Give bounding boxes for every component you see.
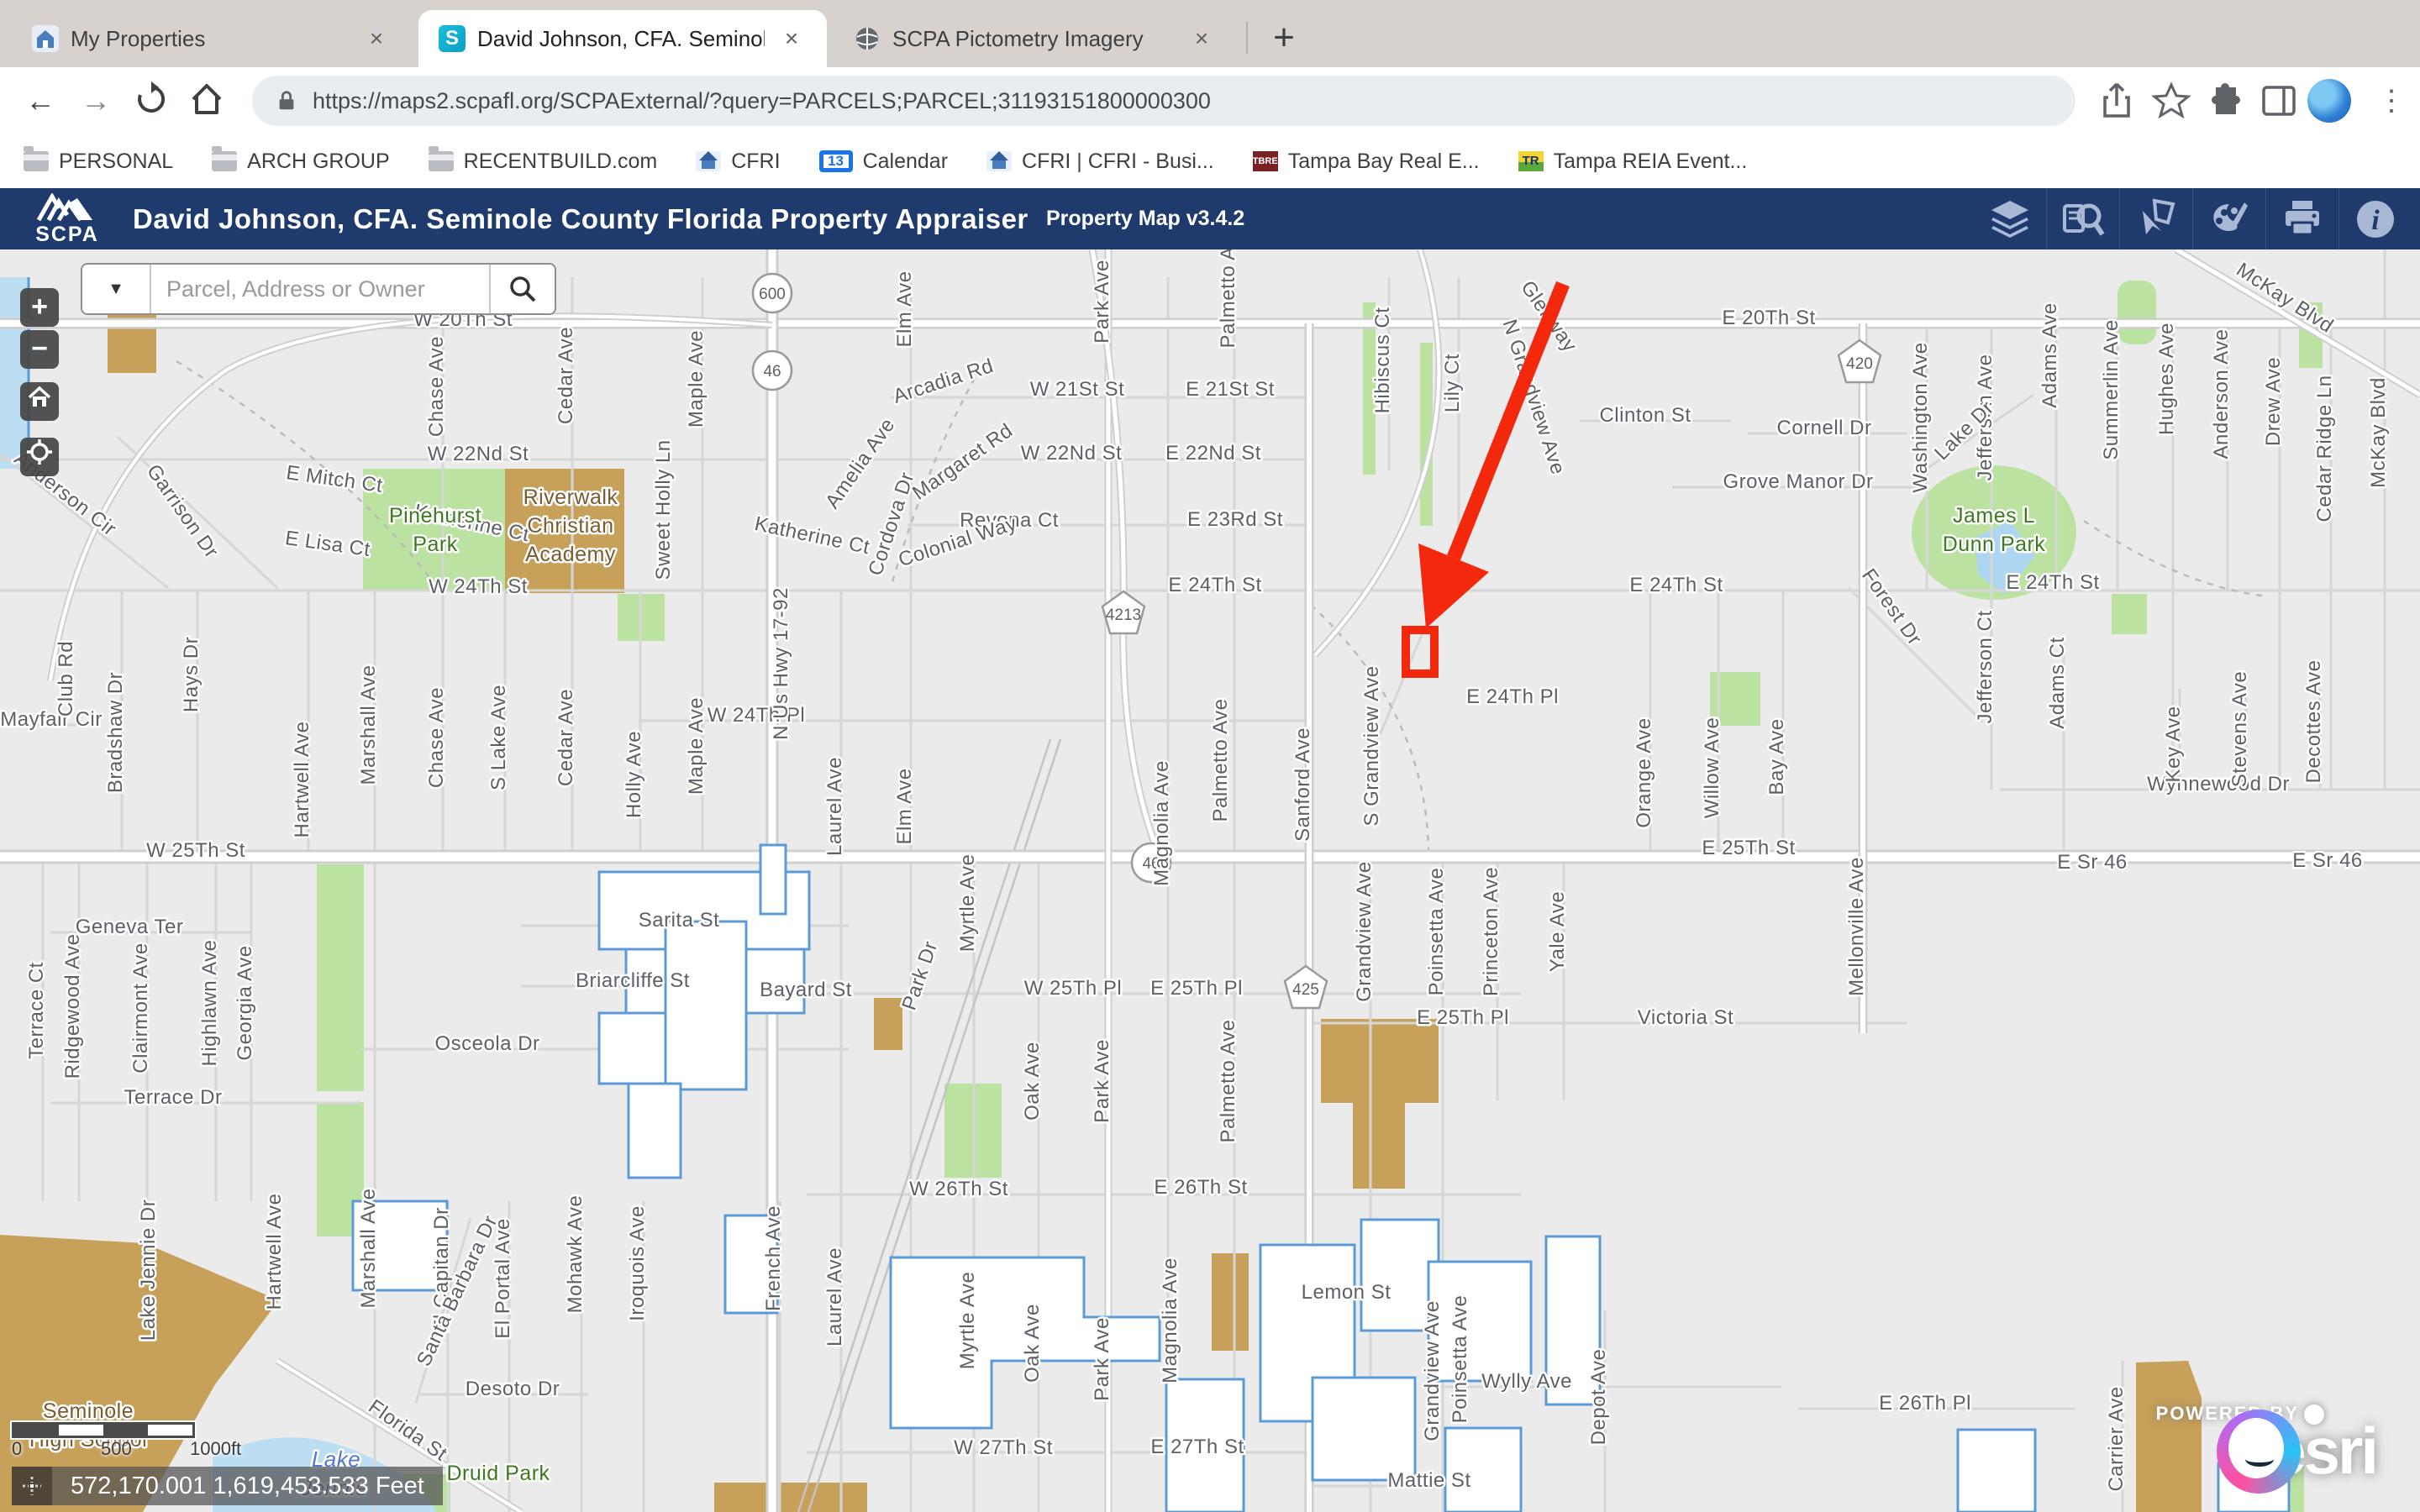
svg-text:46: 46: [763, 363, 781, 381]
svg-text:E Sr 46: E Sr 46: [2292, 849, 2363, 872]
svg-text:W 21St St: W 21St St: [1030, 378, 1125, 401]
tbre-favicon-icon: TBRE: [1253, 151, 1278, 171]
identify-select-button[interactable]: [2119, 188, 2192, 249]
zoom-out-button[interactable]: −: [20, 330, 59, 369]
svg-text:Iroquois Ave: Iroquois Ave: [626, 1205, 649, 1321]
svg-text:Cedar Ave: Cedar Ave: [555, 689, 577, 786]
home-extent-button[interactable]: [20, 382, 59, 421]
scale-bar-graphic: [12, 1422, 195, 1438]
bookmark-star-icon[interactable]: [2151, 81, 2191, 121]
svg-text:Terrace Ct: Terrace Ct: [25, 962, 48, 1059]
svg-text:Maple Ave: Maple Ave: [685, 330, 708, 428]
tab-close-icon[interactable]: ×: [776, 25, 807, 52]
svg-text:Briarcliffe St: Briarcliffe St: [576, 969, 690, 992]
svg-text:McKay Blvd: McKay Blvd: [2367, 377, 2390, 488]
folder-icon: [212, 151, 237, 171]
svg-text:Grove Manor Dr: Grove Manor Dr: [1723, 470, 1873, 493]
reload-button[interactable]: [129, 79, 173, 123]
svg-text:Chase Ave: Chase Ave: [425, 336, 448, 437]
svg-text:Key Ave: Key Ave: [2162, 706, 2185, 782]
forward-button[interactable]: →: [74, 79, 118, 123]
svg-text:Riverwalk: Riverwalk: [523, 486, 618, 509]
folder-icon: [24, 151, 49, 171]
svg-text:Clairmont Ave: Clairmont Ave: [129, 942, 152, 1073]
svg-text:Oak Ave: Oak Ave: [1021, 1304, 1044, 1383]
svg-text:600: 600: [759, 286, 786, 303]
svg-text:Sarita St: Sarita St: [639, 909, 720, 932]
svg-text:Colonial Way: Colonial Way: [896, 512, 1020, 571]
bookmark-recentbuild[interactable]: RECENTBUILD.com: [429, 150, 658, 174]
svg-text:Magnolia Ave: Magnolia Ave: [1150, 760, 1173, 886]
svg-text:W 27Th St: W 27Th St: [954, 1436, 1053, 1459]
svg-text:Pinehurst: Pinehurst: [389, 504, 481, 528]
svg-text:Hibiscus Ct: Hibiscus Ct: [1371, 307, 1394, 414]
browser-menu-kebab-icon[interactable]: ⋮: [2375, 77, 2408, 124]
svg-text:Sanford Ave: Sanford Ave: [1292, 727, 1314, 842]
bookmark-cfri-business[interactable]: CFRI | CFRI - Busi...: [986, 150, 1214, 174]
svg-text:Victoria St: Victoria St: [1638, 1006, 1733, 1029]
svg-text:Florida St: Florida St: [364, 1395, 451, 1466]
svg-text:Carrier Ave: Carrier Ave: [2105, 1386, 2128, 1491]
reia-favicon-icon: TR: [1518, 151, 1544, 171]
browser-tab-bar: My Properties × S David Johnson, CFA. Se…: [0, 0, 2420, 67]
svg-text:Park: Park: [413, 533, 457, 556]
lock-icon: [276, 90, 297, 112]
svg-text:Chase Ave: Chase Ave: [425, 687, 448, 788]
zoom-in-button[interactable]: +: [20, 288, 59, 327]
svg-text:Clinton St: Clinton St: [1599, 404, 1691, 427]
svg-text:Elm Ave: Elm Ave: [893, 768, 916, 844]
svg-text:Bayard St: Bayard St: [760, 979, 852, 1001]
svg-text:E 24Th Pl: E 24Th Pl: [1466, 685, 1559, 708]
esri-attribution: POWERED BY esri: [2146, 1403, 2398, 1504]
house-favicon-icon: [986, 151, 1012, 171]
svg-text:420: 420: [1846, 355, 1873, 373]
tab-close-icon[interactable]: ×: [361, 25, 392, 52]
svg-text:Marshall Ave: Marshall Ave: [357, 665, 380, 785]
tab-close-icon[interactable]: ×: [1186, 25, 1217, 52]
search-button[interactable]: [489, 265, 555, 313]
locate-button[interactable]: [20, 438, 59, 476]
svg-text:E Lisa Ct: E Lisa Ct: [284, 527, 372, 561]
page-title: David Johnson, CFA. Seminole County Flor…: [133, 188, 1028, 249]
address-bar[interactable]: https://maps2.scpafl.org/SCPAExternal/?q…: [252, 76, 2075, 126]
svg-text:Summerlin Ave: Summerlin Ave: [2100, 319, 2123, 459]
home-favicon-icon: [32, 25, 59, 52]
svg-text:S Lake Ave: S Lake Ave: [487, 685, 510, 790]
svg-text:Hughes Ave: Hughes Ave: [2155, 323, 2178, 435]
svg-text:E 24Th St: E 24Th St: [1629, 574, 1723, 596]
svg-text:Park Dr: Park Dr: [897, 938, 942, 1013]
tab-separator: [1246, 22, 1248, 54]
tab-title: David Johnson, CFA. Seminole: [477, 26, 765, 52]
svg-text:Marshall Ave: Marshall Ave: [357, 1189, 380, 1309]
svg-text:W 26Th St: W 26Th St: [909, 1178, 1008, 1200]
svg-text:Decottes Ave: Decottes Ave: [2302, 660, 2325, 784]
scale-bar: 0 500 1000ft: [12, 1422, 264, 1460]
scpa-favicon-icon: S: [439, 25, 466, 52]
svg-text:N Us Hwy 17-92: N Us Hwy 17-92: [770, 587, 792, 740]
bookmark-tampa-reia[interactable]: TRTampa REIA Event...: [1518, 150, 1748, 174]
svg-text:Holly Ave: Holly Ave: [623, 731, 645, 818]
svg-text:Cedar Ave: Cedar Ave: [555, 327, 577, 424]
svg-text:Washington Ave: Washington Ave: [1909, 342, 1932, 492]
svg-text:Grandview Ave: Grandview Ave: [1421, 1300, 1444, 1441]
svg-text:Poinsetta Ave: Poinsetta Ave: [1449, 1295, 1471, 1424]
svg-text:Cedar Ridge Ln: Cedar Ridge Ln: [2313, 375, 2336, 522]
layers-button[interactable]: [1974, 188, 2046, 249]
assistant-overlay-icon: [2217, 1410, 2301, 1494]
svg-text:Terrace Dr: Terrace Dr: [124, 1086, 222, 1109]
svg-text:Lemon St: Lemon St: [1302, 1281, 1391, 1304]
svg-text:Mellonville Ave: Mellonville Ave: [1845, 857, 1868, 996]
svg-text:Highlawn Ave: Highlawn Ave: [198, 940, 221, 1067]
svg-text:Palmetto Ave: Palmetto Ave: [1217, 1020, 1239, 1143]
svg-text:W 25Th Pl: W 25Th Pl: [1024, 977, 1123, 1000]
svg-text:James L: James L: [1953, 504, 2035, 528]
svg-text:E Sr 46: E Sr 46: [2057, 851, 2128, 874]
svg-text:Park Ave: Park Ave: [1091, 1039, 1113, 1123]
svg-text:Myrtle Ave: Myrtle Ave: [956, 1272, 979, 1370]
svg-text:Laurel Ave: Laurel Ave: [823, 757, 846, 856]
svg-text:Bradshaw Dr: Bradshaw Dr: [104, 672, 127, 793]
app-header: SCPA David Johnson, CFA. Seminole County…: [0, 188, 2420, 249]
svg-text:Orange Ave: Orange Ave: [1633, 717, 1655, 827]
svg-text:Osceola Dr: Osceola Dr: [434, 1032, 539, 1055]
svg-text:Druid Park: Druid Park: [446, 1462, 550, 1485]
svg-text:Academy: Academy: [525, 543, 616, 566]
bookmark-cfri[interactable]: CFRI: [696, 150, 780, 174]
globe-favicon-icon: [854, 25, 881, 52]
bookmark-tampa-bay-real-estate[interactable]: TBRETampa Bay Real E...: [1253, 150, 1480, 174]
svg-text:Princeton Ave: Princeton Ave: [1480, 867, 1502, 996]
svg-text:Club Rd: Club Rd: [55, 641, 77, 717]
svg-text:Ridgewood Ave: Ridgewood Ave: [61, 934, 84, 1079]
svg-text:425: 425: [1292, 981, 1319, 999]
svg-text:E 22Nd St: E 22Nd St: [1165, 442, 1261, 465]
calendar-icon: 13: [819, 150, 853, 172]
svg-text:Mattie St: Mattie St: [1387, 1469, 1470, 1492]
svg-text:Wylly Ave: Wylly Ave: [1481, 1370, 1572, 1393]
svg-text:Cornell Dr: Cornell Dr: [1776, 417, 1871, 439]
svg-text:Mayfair Cir: Mayfair Cir: [0, 708, 103, 731]
extensions-puzzle-icon[interactable]: [2206, 81, 2246, 121]
svg-text:E 24Th St: E 24Th St: [2006, 571, 2099, 594]
coordinate-crosshair-icon[interactable]: [12, 1467, 52, 1505]
coordinate-value: 572,170.001 1,619,453.533 Feet: [52, 1467, 443, 1505]
browser-toolbar: ← → https://maps2.scpafl.org/SCPAExterna…: [0, 67, 2420, 134]
svg-text:Arcadia Rd: Arcadia Rd: [891, 354, 997, 408]
svg-text:Laurel Ave: Laurel Ave: [823, 1247, 846, 1347]
svg-text:Hays Dr: Hays Dr: [180, 637, 203, 712]
svg-text:Dunn Park: Dunn Park: [1943, 533, 2046, 556]
svg-text:Bay Ave: Bay Ave: [1765, 718, 1788, 795]
new-tab-button[interactable]: +: [1262, 17, 1306, 60]
svg-text:Depot Ave: Depot Ave: [1587, 1349, 1610, 1446]
svg-text:E Mitch Ct: E Mitch Ct: [285, 461, 384, 497]
svg-text:W 22Nd St: W 22Nd St: [428, 443, 529, 465]
search-input[interactable]: [151, 265, 489, 313]
bookmark-arch-group[interactable]: ARCH GROUP: [212, 150, 389, 174]
svg-text:French Ave: French Ave: [762, 1205, 785, 1311]
svg-text:i: i: [2371, 205, 2380, 236]
svg-text:Garrison Dr: Garrison Dr: [142, 460, 223, 563]
svg-text:Hartwell Ave: Hartwell Ave: [291, 722, 313, 838]
svg-text:E 20Th St: E 20Th St: [1722, 307, 1815, 329]
crosshair-icon: [26, 438, 53, 465]
url-text: https://maps2.scpafl.org/SCPAExternal/?q…: [313, 88, 1211, 114]
map-container: 60046464204213425 W 20Th StE 20Th StW 21…: [0, 249, 2420, 1512]
scpa-mountain-icon: [34, 193, 101, 222]
scpa-logo[interactable]: SCPA: [27, 193, 108, 243]
svg-text:E 23Rd St: E 23Rd St: [1187, 508, 1283, 531]
info-button[interactable]: i: [2338, 188, 2412, 249]
svg-text:E 25Th Pl: E 25Th Pl: [1417, 1006, 1509, 1029]
coordinate-readout: 572,170.001 1,619,453.533 Feet: [12, 1467, 443, 1505]
svg-text:Park Ave: Park Ave: [1091, 260, 1113, 344]
svg-text:Myrtle Ave: Myrtle Ave: [956, 854, 979, 953]
svg-text:Magnolia Ave: Magnolia Ave: [1159, 1257, 1181, 1383]
svg-text:4213: 4213: [1106, 606, 1141, 624]
svg-text:Adams Ct: Adams Ct: [2046, 637, 2069, 728]
svg-text:Stevens Ave: Stevens Ave: [2228, 671, 2251, 787]
svg-text:Palmetto Ave: Palmetto Ave: [1217, 249, 1239, 348]
svg-text:Sweet Holly Ln: Sweet Holly Ln: [652, 439, 675, 580]
scpa-logo-text: SCPA: [27, 226, 108, 243]
print-button[interactable]: [2265, 188, 2338, 249]
side-panel-icon[interactable]: [2259, 81, 2299, 121]
svg-text:S Grandview Ave: S Grandview Ave: [1360, 665, 1383, 826]
back-button[interactable]: ←: [18, 79, 62, 123]
svg-text:Christian: Christian: [527, 514, 613, 538]
svg-text:Mohawk Ave: Mohawk Ave: [564, 1195, 587, 1314]
svg-text:Desoto Dr: Desoto Dr: [466, 1378, 560, 1400]
svg-text:Margaret Rd: Margaret Rd: [908, 419, 1017, 505]
profile-avatar[interactable]: [2307, 79, 2351, 123]
svg-text:Palmetto Ave: Palmetto Ave: [1209, 699, 1232, 822]
svg-text:Park Ave: Park Ave: [1091, 1317, 1113, 1401]
svg-text:E 25Th Pl: E 25Th Pl: [1150, 977, 1243, 1000]
search-type-dropdown[interactable]: ▼: [82, 265, 151, 313]
svg-text:Lake Jennie Dr: Lake Jennie Dr: [137, 1200, 160, 1341]
svg-text:Elm Ave: Elm Ave: [893, 270, 916, 347]
svg-text:Poinsetta Ave: Poinsetta Ave: [1425, 868, 1448, 996]
svg-text:E 21St St: E 21St St: [1186, 378, 1275, 401]
tab-my-properties[interactable]: My Properties ×: [12, 10, 412, 67]
svg-text:Lily Ct: Lily Ct: [1441, 354, 1464, 412]
drawing-tools-button[interactable]: [2192, 188, 2265, 249]
scale-tick: 0: [12, 1438, 22, 1460]
map-canvas[interactable]: 60046464204213425 W 20Th StE 20Th StW 21…: [0, 249, 2420, 1512]
svg-text:E 26Th Pl: E 26Th Pl: [1879, 1392, 1971, 1415]
svg-text:E 25Th St: E 25Th St: [1702, 837, 1795, 859]
svg-text:W 25Th St: W 25Th St: [146, 839, 245, 862]
share-icon[interactable]: [2096, 81, 2137, 121]
svg-text:Grandview Ave: Grandview Ave: [1353, 861, 1376, 1001]
svg-text:E 27Th St: E 27Th St: [1150, 1436, 1244, 1458]
svg-text:W 24Th St: W 24Th St: [429, 575, 528, 598]
tab-pictometry[interactable]: SCPA Pictometry Imagery ×: [834, 10, 1237, 67]
svg-text:Jefferson Ct: Jefferson Ct: [1974, 611, 1996, 724]
bookmark-personal[interactable]: PERSONAL: [24, 150, 173, 174]
tab-title: My Properties: [71, 26, 350, 52]
tab-title: SCPA Pictometry Imagery: [892, 26, 1175, 52]
home-button[interactable]: [185, 79, 229, 123]
svg-text:Oak Ave: Oak Ave: [1021, 1042, 1044, 1121]
tab-scpa-property-map[interactable]: S David Johnson, CFA. Seminole ×: [418, 10, 827, 67]
svg-text:Adams Ave: Adams Ave: [2039, 302, 2061, 407]
svg-text:E 24Th St: E 24Th St: [1168, 574, 1261, 596]
svg-text:Yale Ave: Yale Ave: [1546, 891, 1569, 973]
header-toolbar: i: [1974, 188, 2412, 249]
svg-text:Hartwell Ave: Hartwell Ave: [263, 1194, 286, 1310]
home-icon: [27, 385, 52, 410]
scale-tick: 1000ft: [190, 1438, 241, 1460]
folder-icon: [429, 151, 454, 171]
parcel-search-widget: ▼: [81, 263, 556, 315]
app-version: Property Map v3.4.2: [1046, 188, 1244, 249]
scale-tick: 500: [101, 1438, 132, 1460]
attribute-search-button[interactable]: [2046, 188, 2119, 249]
svg-text:W 22Nd St: W 22Nd St: [1021, 442, 1123, 465]
search-icon: [508, 275, 537, 303]
house-favicon-icon: [696, 151, 721, 171]
svg-text:Willow Ave: Willow Ave: [1701, 717, 1723, 819]
svg-text:Anderson Ave: Anderson Ave: [2210, 328, 2233, 459]
svg-text:Geneva Ter: Geneva Ter: [76, 916, 184, 938]
svg-text:Maple Ave: Maple Ave: [685, 697, 708, 795]
bookmarks-bar: PERSONAL ARCH GROUP RECENTBUILD.com CFRI…: [0, 134, 2420, 188]
svg-text:Seminole: Seminole: [43, 1399, 134, 1423]
svg-text:Georgia Ave: Georgia Ave: [234, 945, 256, 1060]
bookmark-calendar[interactable]: 13Calendar: [819, 150, 948, 174]
svg-text:E 26Th St: E 26Th St: [1154, 1176, 1247, 1199]
svg-text:Drew Ave: Drew Ave: [2262, 357, 2285, 446]
